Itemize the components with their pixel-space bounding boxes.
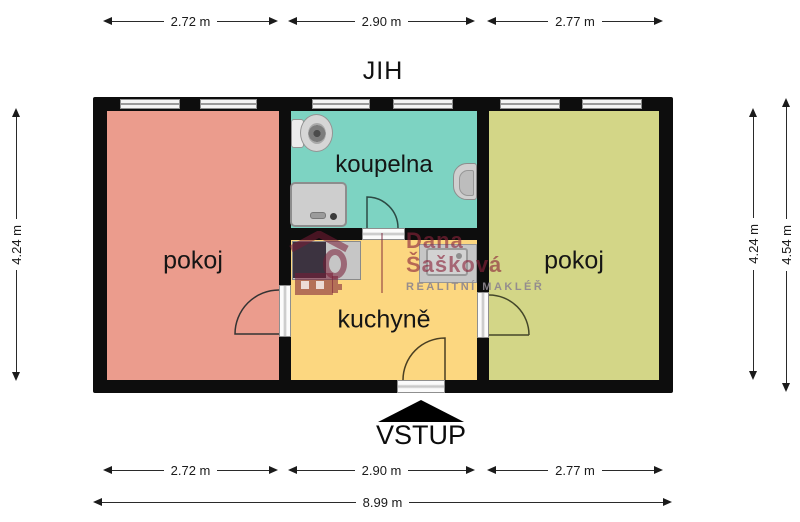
orientation-label: JIH: [363, 57, 404, 86]
dimension-right-inner-height: 4.24 m: [745, 108, 761, 380]
kitchen-sink-icon: [426, 248, 468, 276]
entrance-arrow-icon: [378, 400, 464, 422]
stove-icon: [293, 242, 326, 278]
floor-plan-page: { "title": {"orientation_label": "JIH", …: [0, 0, 800, 522]
arrow-right-icon: [269, 17, 278, 25]
dimension-label: 4.24 m: [746, 218, 761, 270]
arrow-right-icon: [269, 466, 278, 474]
arrow-left-icon: [487, 17, 496, 25]
arrow-right-icon: [654, 466, 663, 474]
dimension-right-outer-height: 4.54 m: [778, 98, 794, 392]
arrow-up-icon: [12, 108, 20, 117]
arrow-right-icon: [466, 466, 475, 474]
entrance-threshold: [397, 380, 445, 393]
dimension-label: 8.99 m: [356, 495, 410, 510]
dimension-left-height: 4.24 m: [8, 108, 24, 381]
door-threshold-koupelna: [362, 228, 405, 240]
dimension-bottom-left: 2.72 m: [103, 463, 278, 477]
dimension-label: 2.90 m: [355, 463, 409, 478]
shower-icon: [290, 182, 347, 227]
arrow-up-icon: [782, 98, 790, 107]
dimension-label: 2.77 m: [548, 463, 602, 478]
arrow-left-icon: [288, 17, 297, 25]
window-icon: [200, 99, 257, 109]
entrance-label: VSTUP: [376, 420, 466, 451]
room-label: pokoj: [163, 247, 223, 276]
window-icon: [393, 99, 453, 109]
dimension-bottom-middle: 2.90 m: [288, 463, 475, 477]
arrow-down-icon: [749, 371, 757, 380]
dimension-bottom-right: 2.77 m: [487, 463, 663, 477]
arrow-up-icon: [749, 108, 757, 117]
dimension-label: 4.24 m: [9, 219, 24, 271]
room-pokoj-right: pokoj: [489, 111, 659, 380]
room-pokoj-left: pokoj: [107, 111, 279, 380]
arrow-left-icon: [103, 466, 112, 474]
dimension-label: 2.90 m: [355, 14, 409, 29]
dimension-label: 4.54 m: [779, 219, 794, 271]
toilet-icon: [300, 114, 333, 152]
dimension-label: 2.77 m: [548, 14, 602, 29]
door-threshold-pokoj-left: [279, 285, 291, 337]
arrow-right-icon: [654, 17, 663, 25]
arrow-left-icon: [288, 466, 297, 474]
arrow-left-icon: [103, 17, 112, 25]
dimension-total-width: 8.99 m: [93, 495, 672, 509]
dimension-top-middle: 2.90 m: [288, 14, 475, 28]
room-label: pokoj: [544, 247, 604, 276]
dimension-top-left: 2.72 m: [103, 14, 278, 28]
room-label: koupelna: [335, 151, 432, 179]
arrow-down-icon: [782, 383, 790, 392]
door-threshold-pokoj-right: [477, 292, 489, 338]
window-icon: [120, 99, 180, 109]
arrow-right-icon: [663, 498, 672, 506]
dimension-label: 2.72 m: [164, 14, 218, 29]
arrow-right-icon: [466, 17, 475, 25]
room-label: kuchyně: [337, 306, 430, 335]
window-icon: [500, 99, 560, 109]
washbasin-icon: [453, 163, 477, 200]
window-icon: [312, 99, 370, 109]
dimension-label: 2.72 m: [164, 463, 218, 478]
dimension-top-right: 2.77 m: [487, 14, 663, 28]
arrow-left-icon: [93, 498, 102, 506]
arrow-left-icon: [487, 466, 496, 474]
arrow-down-icon: [12, 372, 20, 381]
window-icon: [582, 99, 642, 109]
floor-plan: pokoj koupelna kuchyně pokoj: [93, 97, 673, 393]
